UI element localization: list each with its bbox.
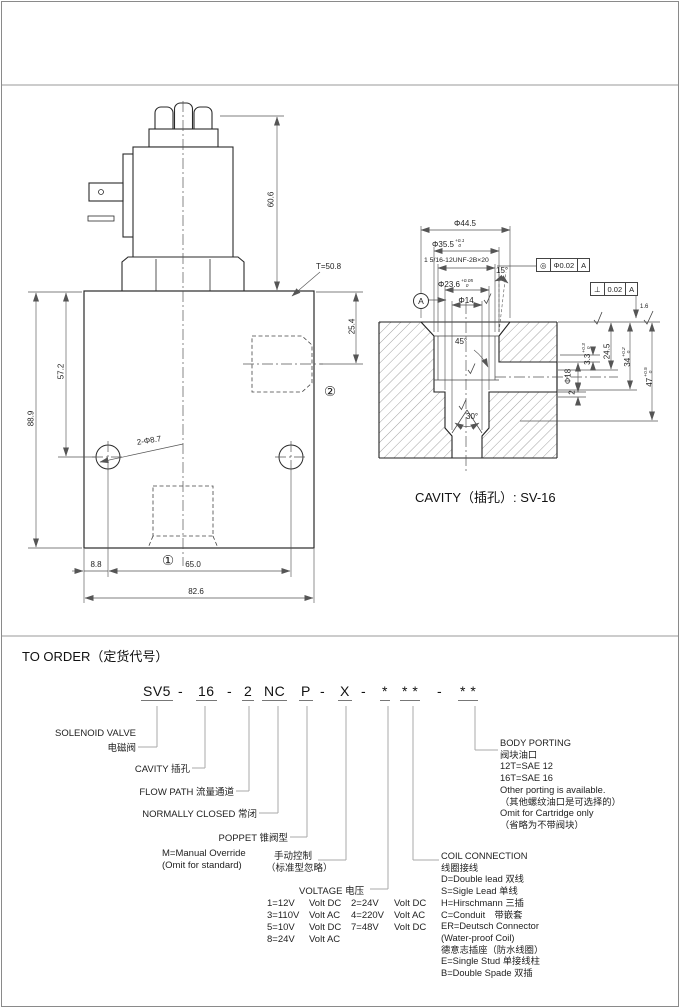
to-order-title: TO ORDER（定货代号） (22, 646, 168, 665)
coil-line: 线圈接线 (441, 863, 543, 875)
coil-connection-block: COIL CONNECTION 线圈接线 D=Double lead 双线 S=… (441, 851, 543, 980)
label-flow-path: FLOW PATH 流量通道 (94, 784, 234, 798)
code-token-p: P (299, 683, 313, 701)
voltage-cell: Volt DC (394, 922, 426, 933)
body-porting-line: BODY PORTING (500, 738, 621, 750)
coil-line: C=Conduit 带嵌套 (441, 910, 543, 922)
perpendicularity-datum: A (626, 283, 637, 295)
port-2-balloon: ② (324, 384, 336, 400)
coil-line: 德意志插座（防水线圈） (441, 945, 543, 957)
dim-3-3-base: 3.3 (583, 354, 592, 365)
angle-15: 15° (496, 266, 508, 275)
code-token-16: 16 (196, 683, 217, 701)
hatched-block (379, 322, 557, 458)
voltage-cell: 4=220V (351, 910, 384, 921)
body-porting-line: Other porting is available. (500, 785, 621, 797)
label-manual-override-2: (Omit for standard) (162, 860, 242, 871)
concentricity-datum: A (578, 259, 589, 271)
cavity-caption: CAVITY（插孔）: SV-16 (415, 487, 556, 506)
dim-d23: Φ23.6+0.050 (438, 279, 473, 289)
dim-d35-sub: 0 (455, 244, 464, 249)
angle-30: 30° (466, 412, 478, 421)
coil-line: E=Single Stud 单接线柱 (441, 956, 543, 968)
code-token-star-pair-1: * * (400, 683, 420, 701)
perpendicularity-tol: 0.02 (605, 283, 627, 295)
label-normally-closed: NORMALLY CLOSED 常闭 (97, 806, 257, 820)
code-token-x: X (338, 683, 352, 701)
dim-d35: Φ35.5+0.10 (432, 239, 464, 249)
code-token-star: * (380, 683, 390, 701)
concentricity-icon: ◎ (537, 259, 551, 271)
dim-d44: Φ44.5 (445, 219, 485, 228)
voltage-cell: 7=48V (351, 922, 379, 933)
voltage-cell: 5=10V (267, 922, 295, 933)
dim-port-depth: 25.4 (348, 312, 357, 342)
datum-a-balloon: A (413, 293, 429, 309)
dim-hole-span: 65.0 (178, 560, 208, 569)
dim-d23-sub: 0 (461, 284, 473, 289)
label-solenoid-valve-en: SOLENOID VALVE (30, 728, 136, 739)
body-porting-line: 16T=SAE 16 (500, 773, 621, 785)
code-token-star-pair-2: * * (458, 683, 478, 701)
dim-47-sub: 0 (649, 367, 654, 376)
dim-47-base: 47 (645, 378, 654, 387)
concentricity-frame: ◎Φ0.02A (536, 258, 590, 272)
voltage-cell: Volt DC (309, 922, 341, 933)
voltage-cell: Volt AC (309, 910, 340, 921)
port-1-balloon: ① (162, 553, 174, 569)
dim-2: 2 (568, 387, 577, 399)
dim-34-sub: 0 (627, 347, 632, 356)
code-dash: - (361, 683, 366, 699)
label-poppet: POPPET 锥阀型 (148, 830, 288, 844)
code-token-sv5: SV5 (141, 683, 173, 701)
din-connector (88, 154, 134, 237)
coil-line: ER=Deutsch Connector (441, 921, 543, 933)
body-porting-line: （其他螺纹油口是可选择的） (500, 797, 621, 809)
voltage-cell: Volt DC (394, 898, 426, 909)
body-porting-line: Omit for Cartridge only (500, 808, 621, 820)
coil-line: S=Sigle Lead 单线 (441, 886, 543, 898)
code-dash: - (178, 683, 183, 699)
label-solenoid-valve-cn: 电磁阀 (30, 740, 136, 754)
surface-finish-value: 1.6 (640, 304, 648, 310)
dim-edge-offset: 8.8 (84, 560, 108, 569)
coil-line: COIL CONNECTION (441, 851, 543, 863)
dim-34: 34+0.20 (622, 342, 632, 372)
voltage-cell: Volt AC (309, 934, 340, 945)
code-token-2: 2 (242, 683, 254, 701)
dim-d23-base: Φ23.6 (438, 280, 460, 289)
dim-47: 47+0.50 (644, 362, 654, 392)
angle-45: 45° (455, 337, 467, 346)
voltage-cell: 3=110V (267, 910, 299, 921)
body-porting-block: BODY PORTING 阀块油口 12T=SAE 12 16T=SAE 16 … (500, 738, 621, 832)
dim-3-3: 3.3+0.30 (582, 339, 592, 369)
code-dash: - (227, 683, 232, 699)
catalog-page: 60.6 T=50.8 25.4 88.9 57.2 2-Φ8.7 8.8 65… (0, 0, 680, 1008)
body-porting-line: （省略为不带阀块） (500, 820, 621, 832)
body-porting-line: 阀块油口 (500, 750, 621, 762)
voltage-cell: Volt DC (309, 898, 341, 909)
drawing-linework (0, 0, 680, 1008)
dim-coil-height: 60.6 (267, 185, 276, 215)
dim-torque-label: T=50.8 (316, 262, 341, 271)
cavity-section-drawing (379, 226, 660, 472)
code-dash: - (320, 683, 325, 699)
voltage-title: VOLTAGE 电压 (299, 883, 364, 897)
voltage-cell: 1=12V (267, 898, 295, 909)
dim-34-base: 34 (623, 358, 632, 367)
voltage-cell: 8=24V (267, 934, 295, 945)
voltage-cell: 2=24V (351, 898, 379, 909)
perpendicularity-icon: ⊥ (591, 283, 605, 295)
perpendicularity-frame: ⊥0.02A (590, 282, 638, 296)
code-dash: - (437, 683, 442, 699)
code-token-nc: NC (262, 683, 287, 701)
dim-body-height: 88.9 (27, 404, 36, 434)
label-cavity: CAVITY 插孔 (80, 761, 190, 775)
concentricity-tol: Φ0.02 (551, 259, 579, 271)
dim-24-5: 24.5 (603, 337, 612, 367)
coil-line: H=Hirschmann 三插 (441, 898, 543, 910)
thread-callout: 1 5/16-12UNF-2B×20 (424, 257, 489, 264)
dim-d14: Φ14 (450, 296, 482, 305)
label-manual-override-1: M=Manual Override (162, 848, 246, 859)
voltage-cell: Volt AC (394, 910, 425, 921)
dim-d35-base: Φ35.5 (432, 240, 454, 249)
coil-line: B=Double Spade 双插 (441, 968, 543, 980)
label-manual-override-cn2: （标准型忽略） (266, 860, 333, 874)
dim-body-width: 82.6 (181, 587, 211, 596)
solenoid-valve-drawing (88, 103, 244, 291)
coil-line: (Water-proof Coil) (441, 933, 543, 945)
coil-line: D=Double lead 双线 (441, 874, 543, 886)
dim-3-3-sub: 0 (587, 343, 592, 352)
dim-hole-offset: 57.2 (57, 357, 66, 387)
body-porting-line: 12T=SAE 12 (500, 761, 621, 773)
crown-nut (149, 103, 218, 147)
